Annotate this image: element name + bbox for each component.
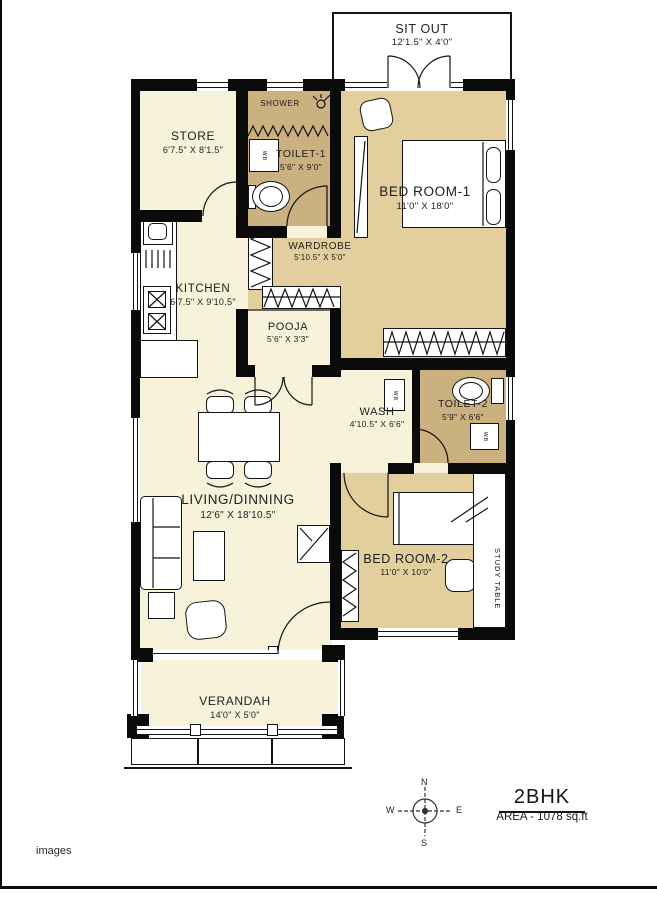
- dining-table: [198, 412, 280, 462]
- plan-title: 2BHK: [499, 786, 585, 813]
- room-dims: 5'10.5" X 5'0": [278, 253, 362, 263]
- wall: [330, 358, 506, 370]
- wall: [236, 226, 287, 238]
- page-border-bottom: [0, 886, 657, 889]
- rail-post: [267, 724, 278, 736]
- room-name: BED ROOM-1: [363, 183, 487, 201]
- page-border-left: [0, 0, 2, 889]
- room-dims: 5'9" X 6'6": [418, 412, 508, 423]
- stove-burner: [148, 313, 166, 330]
- wall: [388, 463, 414, 474]
- side-table: [148, 592, 175, 619]
- wardrobe-unit-horizontal: [262, 286, 341, 309]
- step-edge: [124, 767, 352, 769]
- room-name: STORE: [143, 129, 243, 145]
- room-name: LIVING/DINNING: [175, 491, 301, 509]
- shower-label: SHOWER: [252, 99, 308, 109]
- wall: [506, 420, 515, 640]
- room-label-living: LIVING/DINNING 12'6" X 18'10.5": [175, 491, 301, 522]
- room-label-kitchen: KITCHEN 6'7.5" X 9'10.5": [153, 282, 253, 309]
- washbasin: W.B: [470, 423, 499, 450]
- room-name: KITCHEN: [153, 282, 253, 297]
- wall: [236, 91, 248, 238]
- room-dims: 11'0" X 10'0": [353, 567, 459, 578]
- room-dims: 5'6" X 3'3": [243, 334, 333, 345]
- room-label-wardrobe: WARDROBE 5'10.5" X 5'0": [278, 240, 362, 263]
- compass-south-label: S: [421, 838, 427, 848]
- wall: [330, 628, 378, 640]
- step: [198, 738, 272, 765]
- room-name: POOJA: [243, 320, 333, 334]
- window: [451, 79, 463, 91]
- room-label-store: STORE 6'7.5" X 8'1.5": [143, 129, 243, 156]
- room-dims: 6'7.5" X 8'1.5": [143, 145, 243, 157]
- wall: [327, 226, 341, 238]
- room-name: TOILET-2: [418, 398, 508, 412]
- verandah-rail: [137, 726, 337, 735]
- study-table-label: STUDY TABLE: [478, 540, 502, 618]
- kitchen-sink-bowl: [148, 223, 167, 240]
- room-dims: 11'0" X 18'0": [363, 201, 487, 213]
- compass-west-label: W: [386, 805, 395, 815]
- dining-chair: [206, 461, 234, 479]
- tv-unit: [297, 525, 330, 563]
- wall: [131, 79, 140, 253]
- floor-plan-page: W.B W.B W.B: [0, 0, 657, 900]
- room-label-bedroom2: BED ROOM-2 11'0" X 10'0": [353, 551, 459, 578]
- room-label-verandah: VERANDAH 14'0" X 5'0": [183, 694, 287, 721]
- wall: [506, 150, 515, 377]
- window: [506, 100, 515, 150]
- window: [197, 79, 228, 91]
- room-name: WASH: [338, 405, 416, 419]
- wall: [448, 463, 506, 474]
- bed-pillow: [486, 147, 501, 183]
- room-dims: 5'6" X 9'0": [266, 162, 336, 173]
- room-label-bedroom1: BED ROOM-1 11'0" X 18'0": [363, 183, 487, 213]
- room-label-pooja: POOJA 5'6" X 3'3": [243, 320, 333, 345]
- room-name: BED ROOM-2: [353, 551, 459, 567]
- wall: [131, 522, 140, 660]
- washbasin-label: W.B: [482, 432, 487, 441]
- center-table: [193, 531, 225, 581]
- room-label-sitout: SIT OUT 12'1.5" X 4'0": [338, 21, 506, 50]
- wall: [458, 628, 515, 640]
- room-dims: 14'0" X 5'0": [183, 710, 287, 722]
- toilet1-wc-bowl: [259, 186, 283, 207]
- window: [131, 253, 140, 310]
- room-dims: 12'1.5" X 4'0": [338, 37, 506, 49]
- room-dims: 4'10.5" X 6'6": [338, 419, 416, 430]
- room-name: WARDROBE: [278, 240, 362, 253]
- room-dims: 6'7.5" X 9'10.5": [153, 297, 253, 309]
- rail-post: [190, 724, 201, 736]
- main-door-sill: [153, 650, 278, 658]
- wall: [131, 310, 140, 418]
- room-label-wash: WASH 4'10.5" X 6'6": [338, 405, 416, 430]
- room-name: SIT OUT: [338, 21, 506, 37]
- room-label-toilet1: TOILET-1 5'6" X 9'0": [266, 148, 336, 173]
- bedroom1-wardrobe-unit: [383, 328, 506, 357]
- step: [272, 738, 345, 765]
- wall: [303, 79, 345, 91]
- compass-icon: [398, 787, 452, 836]
- wall: [330, 463, 341, 628]
- window: [131, 418, 140, 522]
- room-dims: 12'6" X 18'10.5": [175, 509, 301, 522]
- compass-north-label: N: [421, 777, 428, 787]
- room-label-toilet2: TOILET-2 5'9" X 6'6": [418, 398, 508, 423]
- wall: [236, 365, 255, 377]
- room-name: TOILET-1: [266, 148, 336, 162]
- step: [131, 738, 198, 765]
- washbasin-label: W.B: [392, 390, 397, 399]
- floor-living-lower: [140, 640, 332, 650]
- armchair: [184, 599, 228, 641]
- wall: [131, 79, 197, 91]
- verandah-rail: [338, 660, 345, 716]
- window: [378, 628, 458, 640]
- watermark-text: images: [36, 845, 71, 857]
- plan-area-text: AREA - 1078 sq.ft: [483, 811, 601, 823]
- wall: [140, 210, 202, 222]
- dining-chair: [244, 461, 272, 479]
- wall: [506, 79, 515, 100]
- window: [345, 79, 387, 91]
- compass-east-label: E: [456, 805, 462, 815]
- bed-pillow: [486, 189, 501, 225]
- wall: [228, 79, 267, 91]
- verandah-rail: [131, 660, 138, 716]
- room-name: VERANDAH: [183, 694, 287, 710]
- fixture-name: SHOWER: [252, 99, 308, 109]
- window: [267, 79, 303, 91]
- kitchen-counter-return: [140, 340, 198, 378]
